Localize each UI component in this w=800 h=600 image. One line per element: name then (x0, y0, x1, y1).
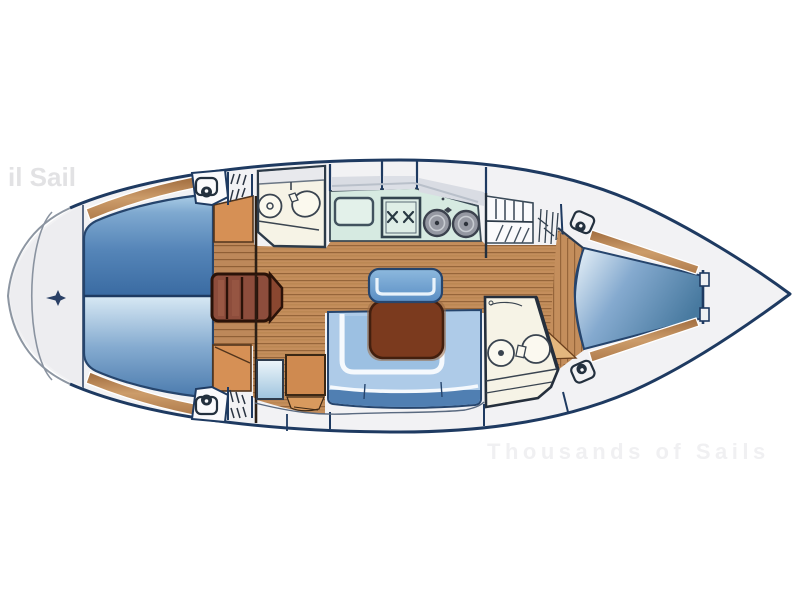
svg-text:il Sail: il Sail (8, 162, 76, 192)
svg-text:Thousands of Sails: Thousands of Sails (487, 439, 770, 464)
